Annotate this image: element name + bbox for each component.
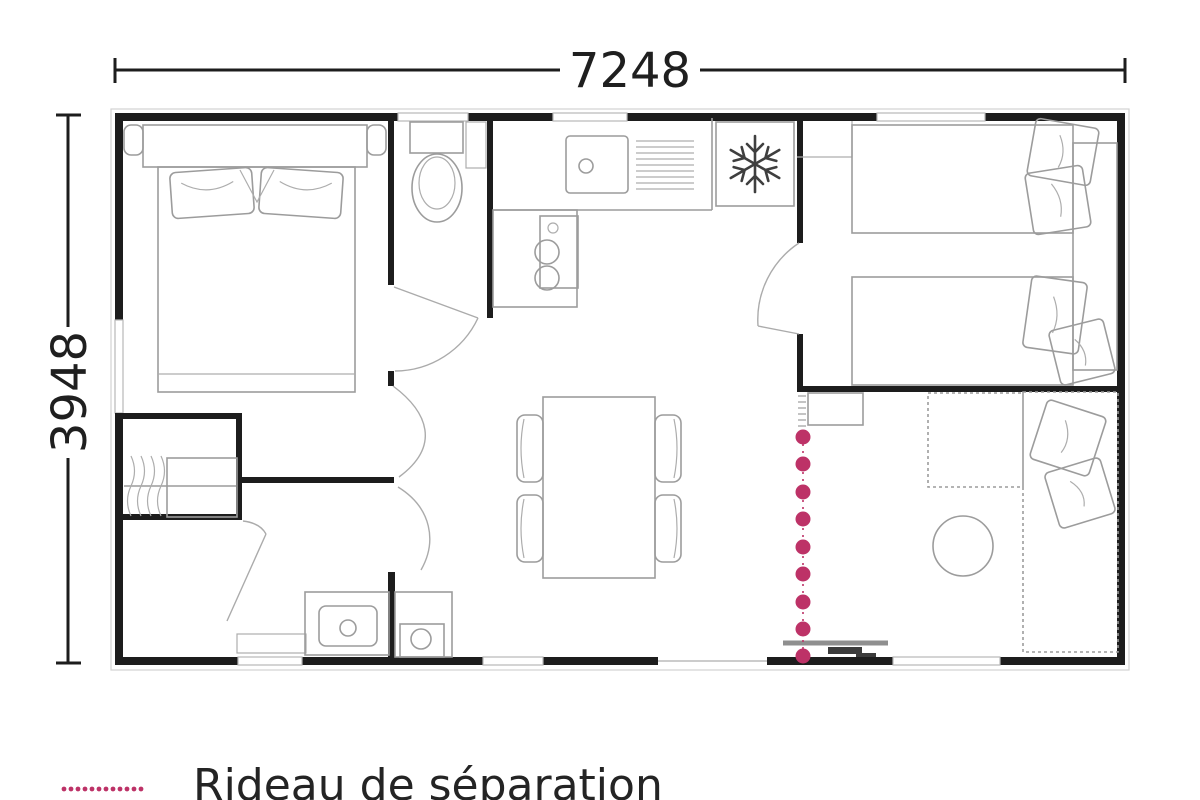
- chair: [517, 495, 543, 562]
- curtain-legend-label: Rideau de séparation: [193, 760, 663, 800]
- snowflake-icon: [727, 136, 783, 192]
- top-dimension: 7248: [115, 43, 1125, 99]
- lounge-table-seat: [928, 393, 1023, 487]
- window-bottom-1: [238, 657, 302, 665]
- twin-bedroom-door-arc: [758, 243, 799, 326]
- bedside-left: [124, 125, 143, 155]
- floor-plan-canvas: 7248 3948: [0, 0, 1200, 800]
- shower-door-arc: [243, 521, 266, 534]
- toilet-cistern: [410, 122, 463, 153]
- basin-drain: [340, 620, 356, 636]
- wc-room: [410, 122, 486, 222]
- bedside-right: [367, 125, 386, 155]
- wc-shelf: [466, 122, 486, 168]
- window-top-3: [877, 113, 985, 121]
- chair: [517, 415, 543, 482]
- pillow-fold: [240, 170, 274, 202]
- burner: [535, 266, 559, 290]
- cushion: [1029, 399, 1107, 477]
- pillow: [1025, 165, 1092, 235]
- toilet-seat: [419, 157, 455, 209]
- twin-bedroom: [797, 118, 1117, 386]
- shower-step: [237, 634, 306, 653]
- window-top-2: [553, 113, 627, 121]
- window-bottom-2: [483, 657, 543, 665]
- window-top-1: [398, 113, 468, 121]
- bathroom: [124, 456, 452, 657]
- entrance-door-handle: [828, 647, 862, 654]
- twin-bed-2: [852, 277, 1073, 385]
- window-bottom-3: [893, 657, 1000, 665]
- wardrobe-unit: [167, 458, 237, 517]
- kitchen: [493, 118, 794, 307]
- lounge: [798, 392, 1118, 652]
- floor-plan-page: 7248 3948: [0, 0, 1200, 800]
- chair: [655, 495, 681, 562]
- wc-door-leaf: [394, 287, 478, 318]
- hob-cabinet: [493, 210, 577, 307]
- legend: Rideau de séparation: [62, 760, 663, 800]
- burner: [535, 240, 559, 264]
- wc-door-arc: [395, 318, 478, 371]
- dining-area: [517, 397, 681, 578]
- dining-table: [543, 397, 655, 578]
- interior-walls: [115, 113, 1117, 665]
- hall-door-arc: [398, 487, 430, 570]
- pillow: [169, 167, 254, 219]
- wash-basin: [319, 606, 377, 646]
- twin-bed-1: [852, 125, 1073, 233]
- curtain-rail-hatch: [798, 396, 806, 426]
- chair: [655, 415, 681, 482]
- curtain-legend-swatch: [62, 787, 144, 792]
- headboard-shelf: [143, 125, 367, 167]
- pillow: [1026, 118, 1099, 186]
- round-table: [933, 516, 993, 576]
- lounge-cabinet: [808, 393, 863, 425]
- master-bedroom: [124, 125, 386, 392]
- hob-control: [548, 223, 558, 233]
- twin-bedroom-door-leaf: [758, 326, 799, 334]
- height-dimension-label: 3948: [42, 331, 98, 453]
- drainer: [636, 141, 694, 189]
- width-dimension-label: 7248: [569, 43, 691, 99]
- interior-doors: [393, 243, 799, 570]
- window-left: [115, 320, 123, 413]
- bedroom-door-arc: [393, 386, 425, 477]
- separation-curtain: [796, 430, 811, 664]
- kitchen-sink: [566, 136, 628, 193]
- heater-dial: [411, 629, 431, 649]
- left-dimension: 3948: [42, 115, 98, 663]
- shower-door-leaf: [227, 534, 266, 621]
- cushion: [1044, 457, 1116, 529]
- sink-drain: [579, 159, 593, 173]
- niche-line: [797, 121, 852, 157]
